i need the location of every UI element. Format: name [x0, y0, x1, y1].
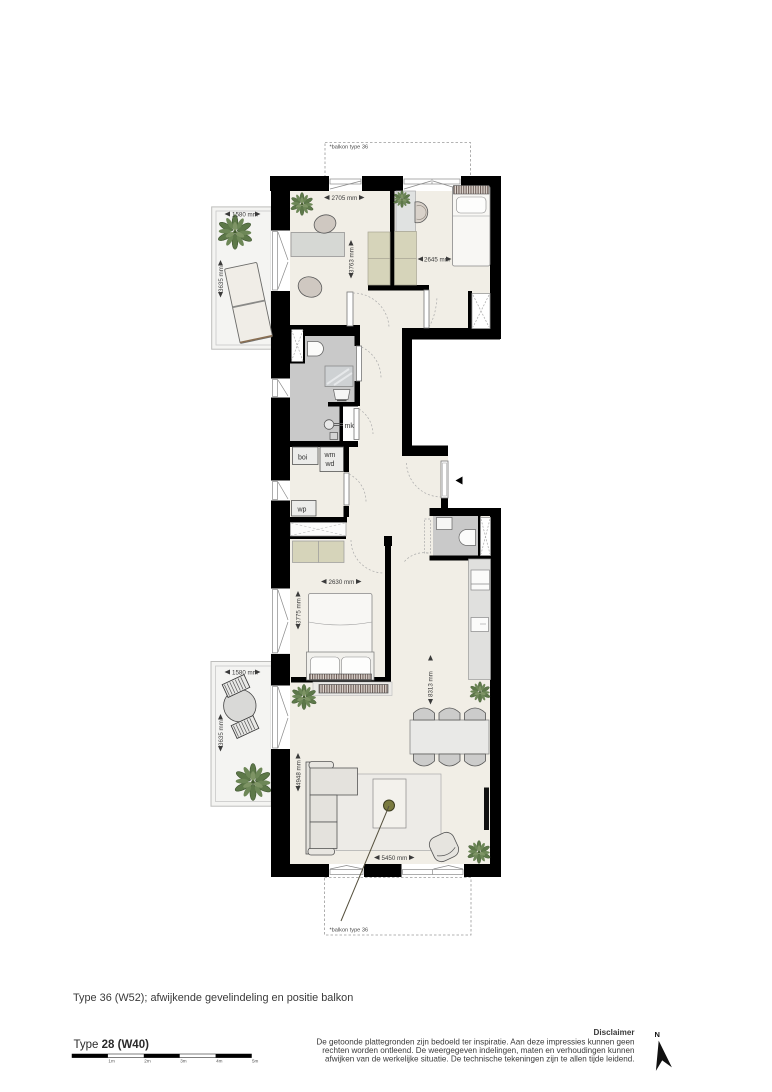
svg-text:afwijken van de werkelijke sit: afwijken van de werkelijke situatie. De …	[325, 1055, 635, 1064]
svg-text:5m: 5m	[252, 1059, 259, 1064]
svg-text:1580 mm: 1580 mm	[232, 670, 258, 677]
svg-text:3775 mm: 3775 mm	[296, 598, 303, 624]
svg-text:8313 mm: 8313 mm	[428, 671, 435, 697]
svg-text:3763 mm: 3763 mm	[349, 247, 356, 273]
svg-text:2630 mm: 2630 mm	[329, 579, 355, 586]
svg-text:1580 mm: 1580 mm	[232, 212, 258, 219]
svg-text:4m: 4m	[216, 1059, 223, 1064]
svg-text:*balkon type 36: *balkon type 36	[330, 145, 369, 151]
svg-text:wp: wp	[297, 507, 307, 514]
svg-text:2645 mm: 2645 mm	[424, 257, 450, 264]
svg-text:4948 mm: 4948 mm	[296, 760, 303, 786]
svg-text:3635 mm: 3635 mm	[218, 720, 225, 746]
svg-text:*balkon type 36: *balkon type 36	[330, 928, 369, 934]
svg-text:boi: boi	[298, 455, 308, 462]
svg-text:3635 mm: 3635 mm	[218, 266, 225, 292]
svg-text:1m: 1m	[108, 1059, 115, 1064]
svg-text:Type 28 (W40): Type 28 (W40)	[74, 1039, 150, 1051]
svg-text:wm: wm	[324, 452, 336, 459]
svg-text:3m: 3m	[180, 1059, 187, 1064]
svg-text:2705 mm: 2705 mm	[332, 195, 358, 202]
svg-text:wd: wd	[325, 461, 335, 468]
svg-text:Type 36 (W52); afwijkende geve: Type 36 (W52); afwijkende gevelindeling …	[73, 992, 353, 1004]
svg-text:5450 mm: 5450 mm	[382, 855, 408, 862]
svg-text:N: N	[655, 1030, 660, 1039]
svg-text:2m: 2m	[144, 1059, 151, 1064]
svg-text:Disclaimer: Disclaimer	[594, 1028, 636, 1037]
svg-text:mk: mk	[345, 423, 355, 430]
